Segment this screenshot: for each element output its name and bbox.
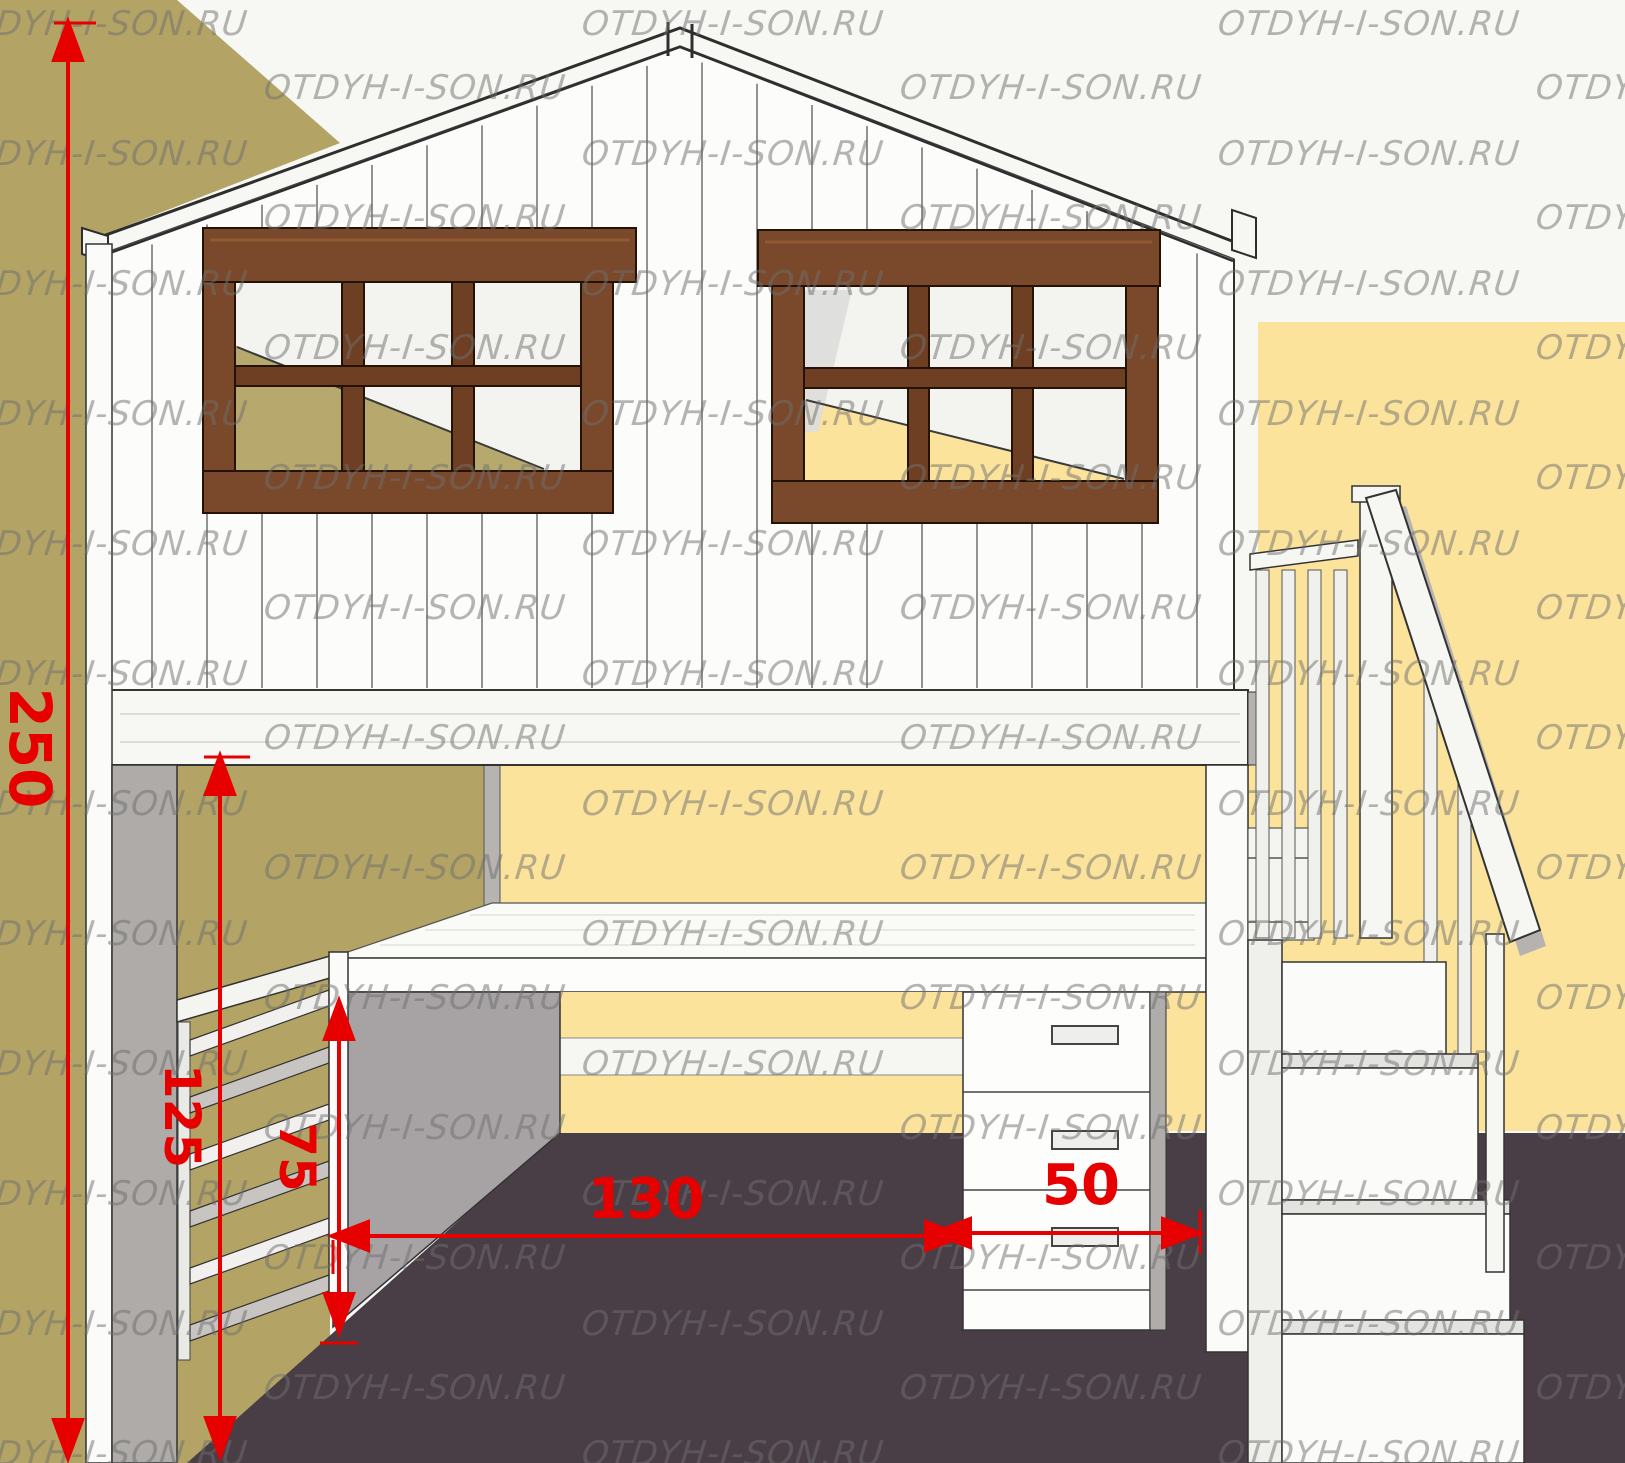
dimension-lines — [0, 0, 1625, 1463]
dim-label-desk-width: 130 — [588, 1172, 705, 1228]
dim-label-desk-height: 75 — [272, 1122, 322, 1192]
dim-label-total-height: 250 — [1, 687, 59, 808]
dim-label-under-loft-height: 125 — [157, 1064, 207, 1168]
blueprint-canvas: OTDYH-I-SON.RUOTDYH-I-SON.RUOTDYH-I-SON.… — [0, 0, 1625, 1463]
dim-label-drawer-width: 50 — [1042, 1158, 1120, 1214]
